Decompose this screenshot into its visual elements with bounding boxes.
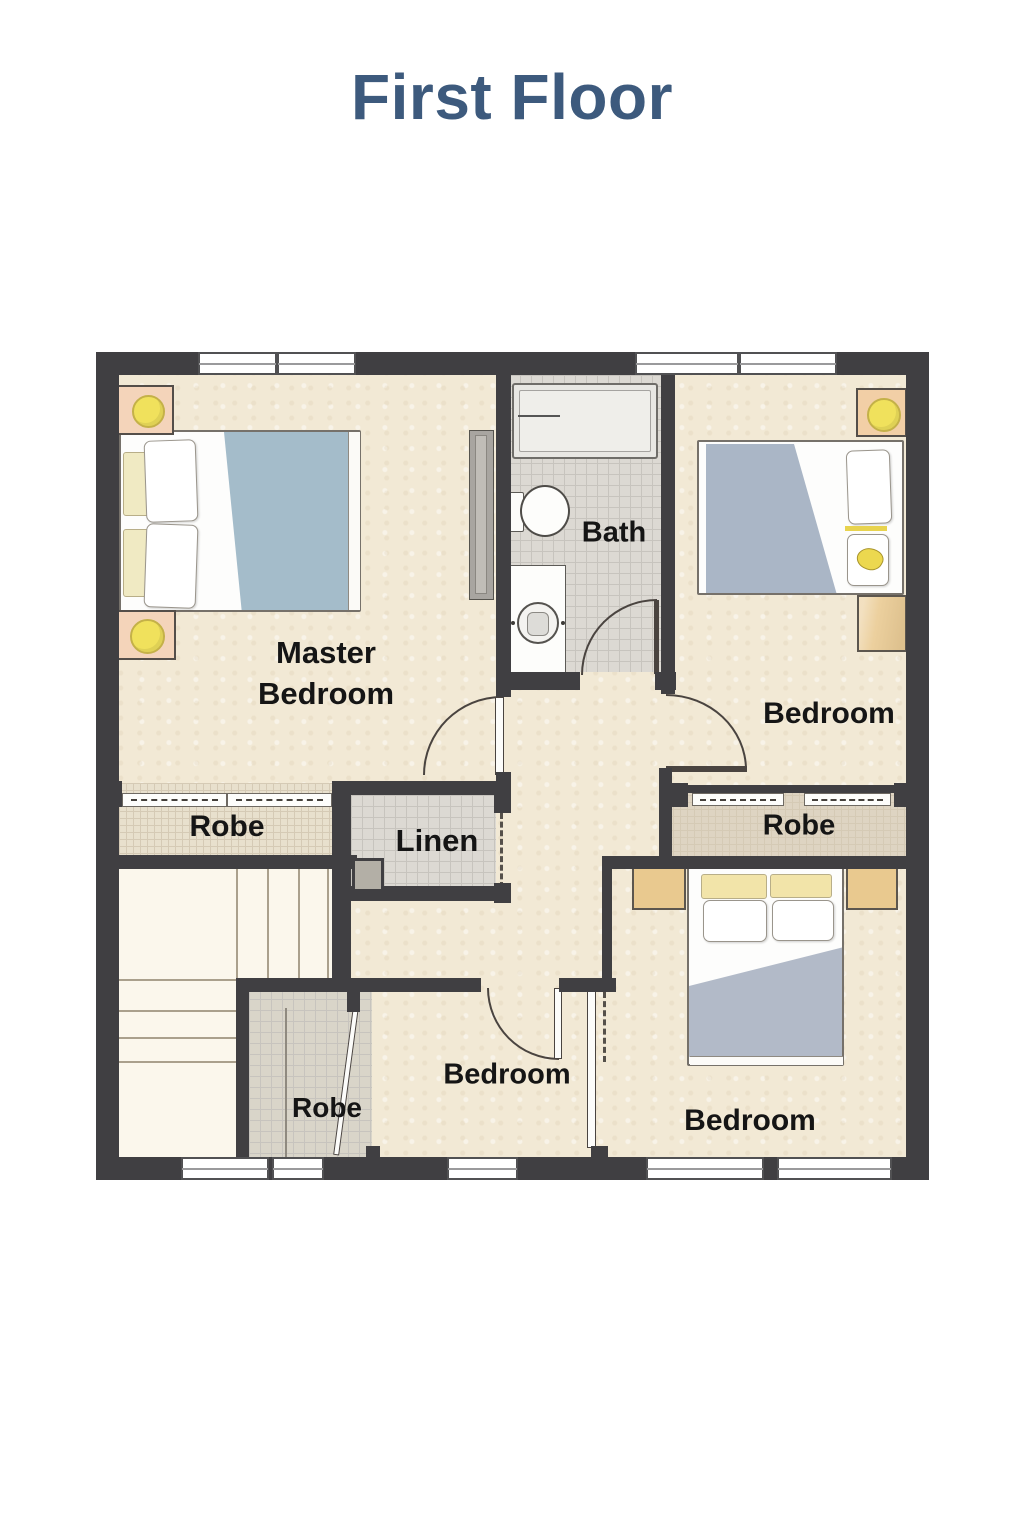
sliding-door: [227, 793, 332, 807]
wall: [332, 781, 496, 795]
wall: [661, 375, 675, 694]
room-label-bedroom-bottom-middle: Bedroom: [443, 1059, 570, 1092]
wall: [96, 352, 119, 1180]
page-title: First Floor: [0, 60, 1024, 134]
wall: [366, 1146, 380, 1159]
window: [181, 1157, 269, 1180]
room-label-robe-bottom: Robe: [292, 1092, 362, 1124]
shaft: [352, 858, 384, 892]
wall: [347, 986, 360, 1012]
window: [646, 1157, 764, 1180]
lamp: [867, 398, 901, 432]
door-leaf: [587, 990, 596, 1148]
door-swing-arc: [666, 694, 747, 770]
wall: [240, 978, 481, 992]
room-label-bedroom-bottom-right: Bedroom: [684, 1104, 816, 1138]
double-bed: [119, 430, 361, 612]
pillow: [846, 449, 893, 524]
room-label-robe-master: Robe: [190, 810, 265, 844]
door-leaf: [554, 988, 562, 1059]
dresser: [469, 430, 494, 600]
wall: [96, 855, 357, 869]
door-leaf: [654, 600, 659, 674]
blanket-trim: [845, 526, 887, 531]
window: [198, 352, 277, 375]
floor-plan: Master Bedroom Bath Bedroom Robe Linen R…: [96, 352, 929, 1180]
nightstand: [856, 388, 907, 437]
toilet-bowl: [520, 485, 570, 537]
room-label-linen: Linen: [396, 823, 479, 859]
window: [447, 1157, 518, 1180]
double-bed: [687, 865, 844, 1066]
stair-tread: [119, 1037, 236, 1039]
sliding-door: [804, 793, 891, 806]
lamp: [132, 395, 165, 428]
wall: [496, 672, 580, 690]
wall: [686, 785, 897, 793]
nightstand: [846, 866, 898, 910]
window: [635, 352, 739, 375]
wall: [99, 781, 122, 807]
desk: [857, 595, 907, 652]
single-bed: [697, 440, 904, 595]
sliding-door: [122, 793, 227, 807]
faucet: [518, 415, 560, 417]
lamp: [130, 619, 165, 654]
pillow: [144, 439, 199, 523]
door-leaf: [495, 697, 504, 775]
headboard-cushion: [701, 874, 767, 899]
wall: [236, 978, 249, 1157]
bathtub: [512, 383, 658, 459]
wall: [496, 375, 511, 697]
stair-line: [236, 865, 238, 979]
room-label-bath: Bath: [582, 517, 646, 550]
dresser-top: [475, 435, 487, 594]
wall: [602, 856, 910, 869]
nightstand: [116, 385, 174, 435]
room-label-bedroom-top-right: Bedroom: [763, 697, 895, 731]
wall: [659, 768, 672, 858]
vanity-sink: [507, 565, 566, 679]
nightstand: [632, 866, 686, 910]
stair-line: [119, 979, 236, 981]
pillow: [703, 900, 767, 942]
sliding-door: [692, 793, 784, 806]
tap: [561, 621, 565, 625]
window: [739, 352, 837, 375]
stair-tread: [119, 1010, 236, 1012]
wall: [659, 783, 688, 807]
headboard-cushion: [770, 874, 832, 898]
robe-divider-line: [285, 1008, 287, 1157]
wall: [332, 781, 351, 980]
window: [777, 1157, 892, 1180]
footboard: [348, 432, 360, 610]
door-dashed-line: [500, 813, 503, 888]
wall: [906, 352, 929, 1180]
stair-tread: [298, 865, 300, 979]
stair-tread: [327, 865, 329, 979]
room-label-master-bedroom: Master Bedroom: [231, 633, 421, 715]
stair-tread: [267, 865, 269, 979]
wall: [494, 795, 511, 813]
stair-tread: [119, 1061, 236, 1063]
door-swing-arc: [423, 696, 502, 775]
tap: [511, 621, 515, 625]
door-dashed-line: [603, 992, 606, 1062]
wall: [591, 1146, 608, 1159]
bathtub-inner: [519, 390, 651, 452]
wall: [655, 672, 676, 690]
pillow: [144, 523, 199, 609]
door-leaf: [666, 766, 747, 772]
nightstand: [114, 610, 176, 660]
room-label-robe-right: Robe: [763, 810, 836, 843]
pillow: [772, 900, 834, 941]
window: [277, 352, 356, 375]
sink-inner: [527, 612, 549, 636]
wall: [494, 883, 511, 903]
wall: [602, 868, 612, 978]
door-swing-arc: [487, 988, 559, 1060]
footboard: [690, 1056, 843, 1065]
wall: [559, 978, 616, 992]
window: [272, 1157, 324, 1180]
